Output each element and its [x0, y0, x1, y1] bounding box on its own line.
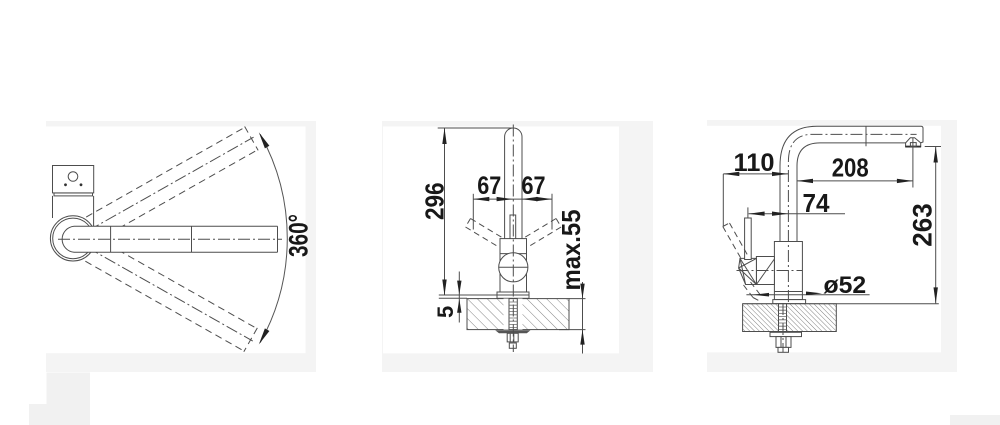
svg-text:296: 296: [420, 182, 450, 220]
svg-text:67: 67: [522, 172, 546, 200]
svg-text:max.55: max.55: [556, 210, 586, 291]
svg-text:ø52: ø52: [824, 272, 867, 299]
svg-text:208: 208: [832, 153, 869, 183]
svg-text:67: 67: [477, 172, 501, 200]
svg-text:360°: 360°: [284, 214, 314, 257]
svg-text:110: 110: [734, 149, 775, 177]
svg-text:74: 74: [803, 188, 831, 218]
svg-text:5: 5: [433, 306, 458, 318]
svg-text:263: 263: [908, 203, 938, 247]
